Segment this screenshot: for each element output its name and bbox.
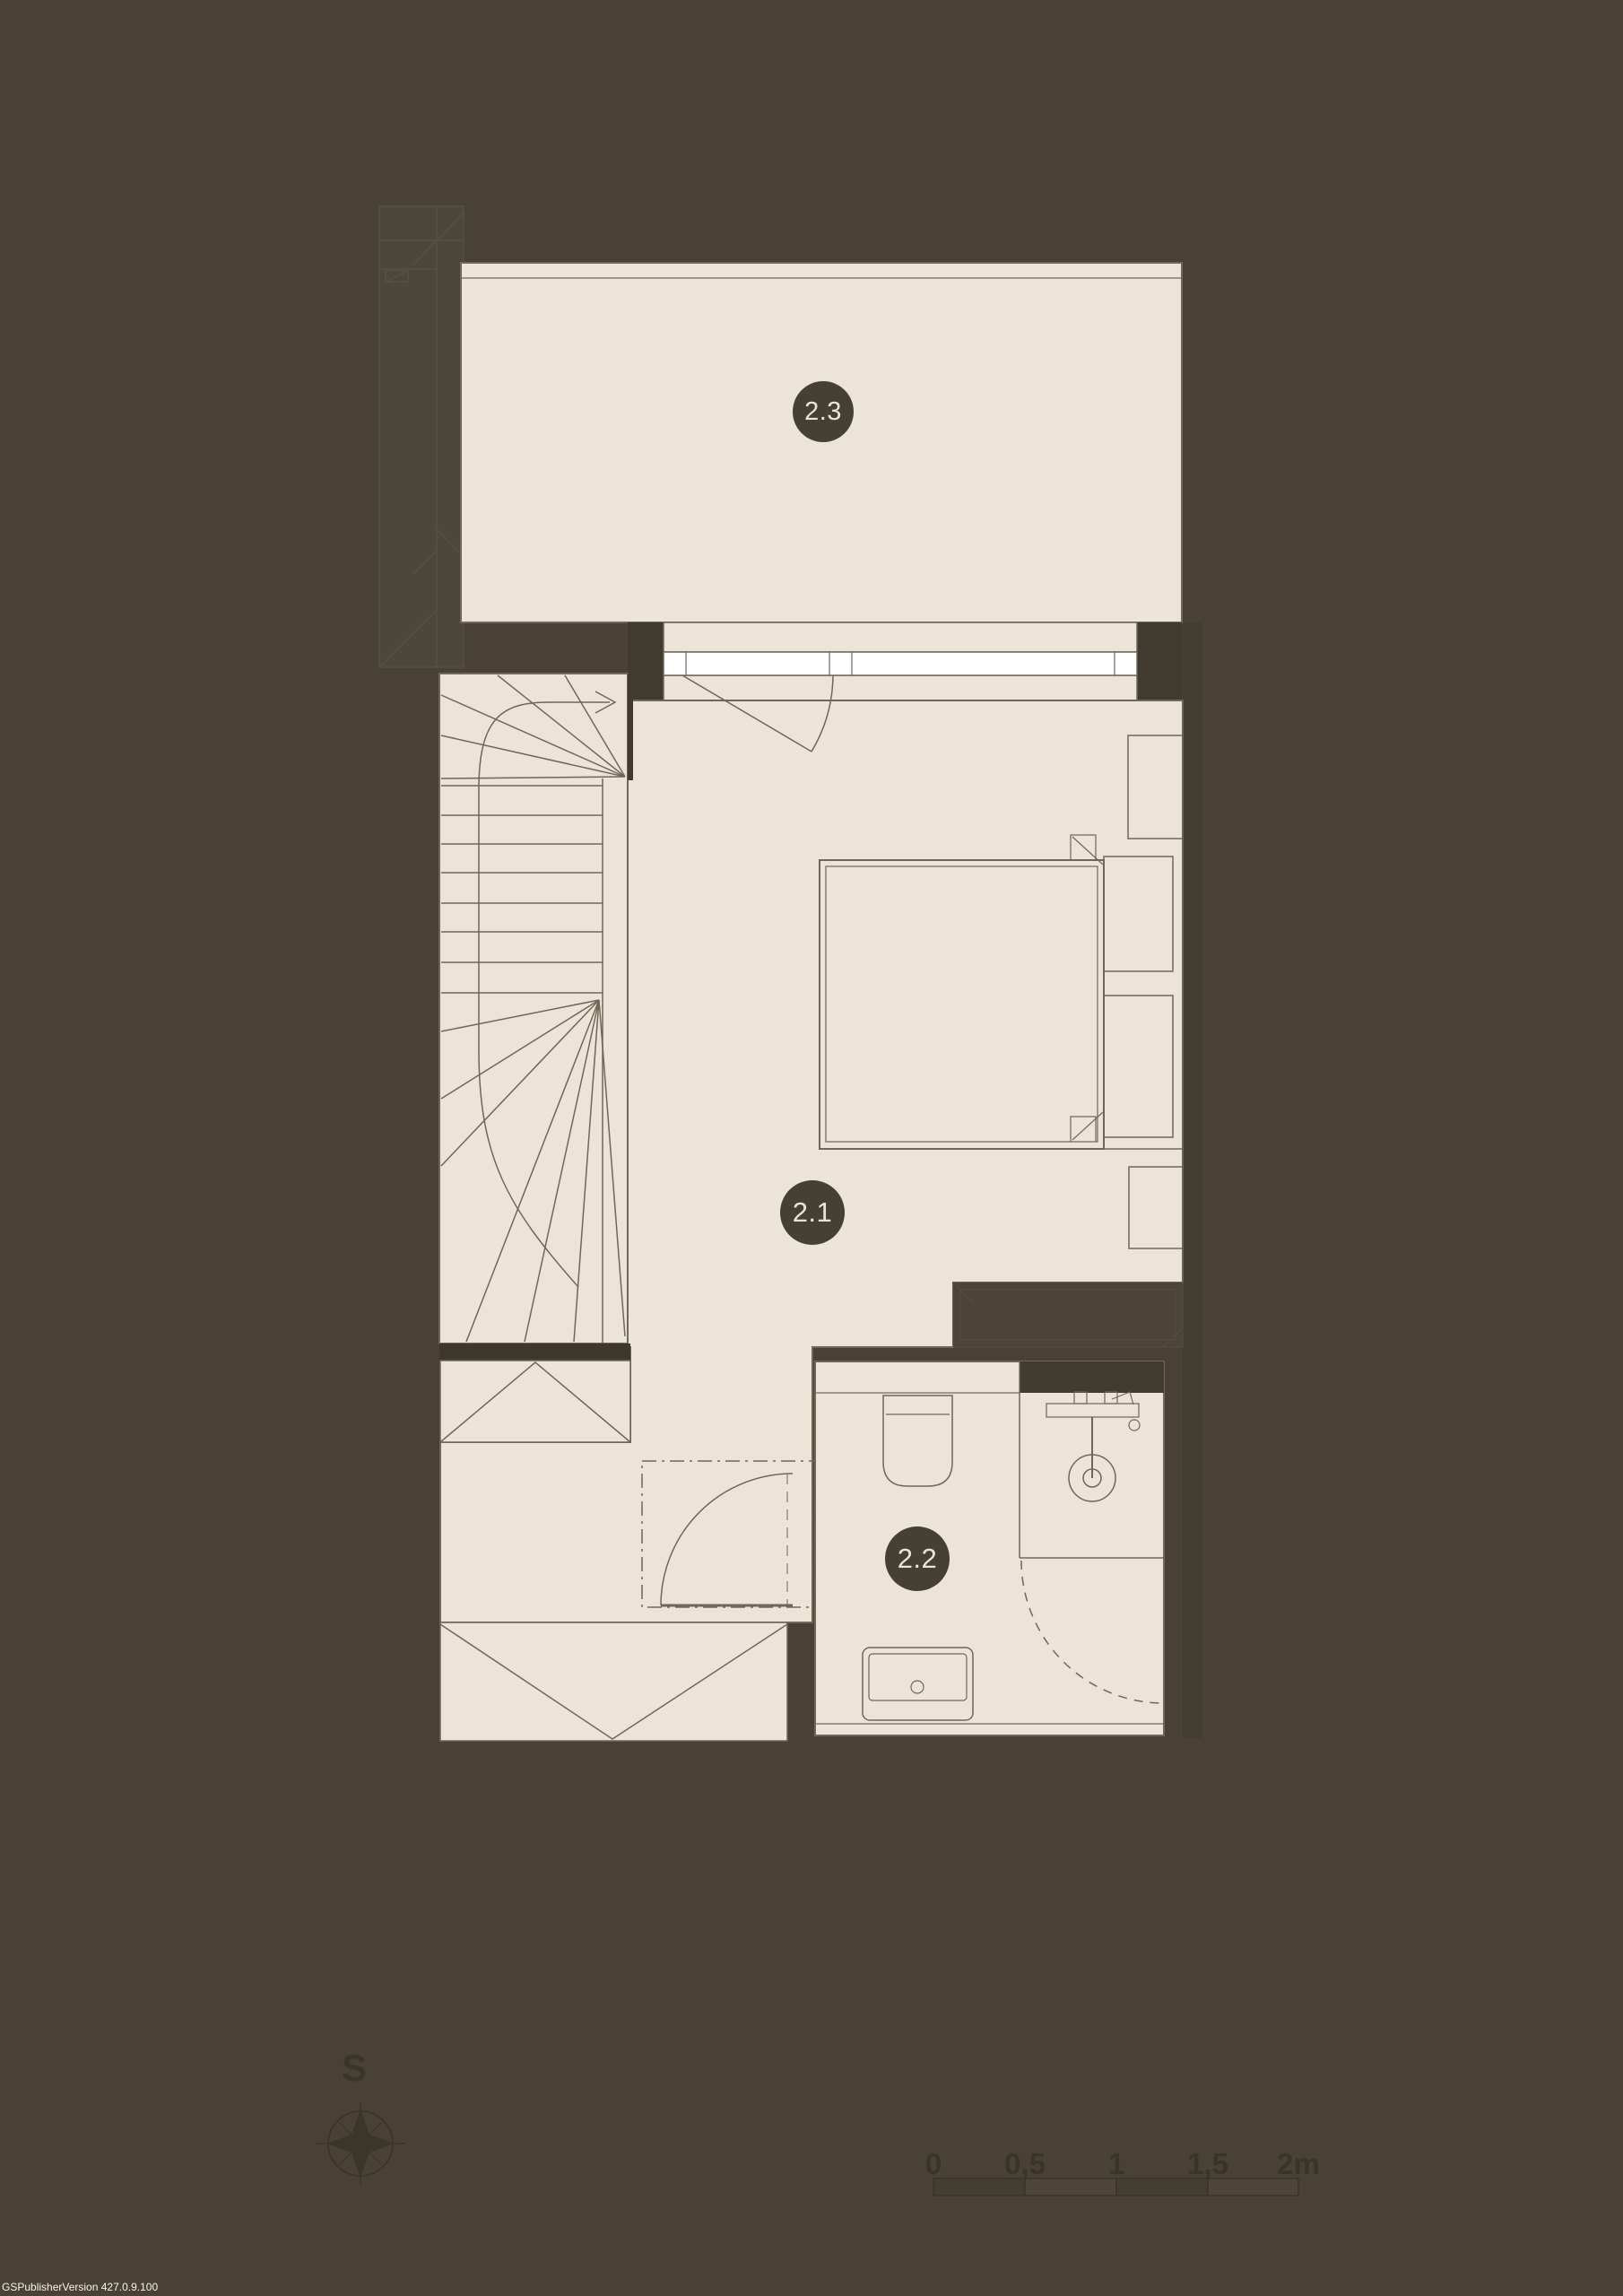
scale-tick-label: 1,5 (1167, 2147, 1248, 2181)
wardrobe-lower (440, 1622, 787, 1741)
window-glazing (664, 652, 1137, 675)
adjacent-structure-outline (379, 206, 464, 667)
floor-plan-page: 2.3 2.1 2.2 S 0 0,5 1 1,5 2m GSPublisher… (0, 0, 1623, 2296)
compass-icon (316, 2103, 405, 2184)
room-number: 2.2 (898, 1543, 938, 1575)
room-label-2-2: 2.2 (885, 1526, 950, 1591)
scale-tick-label: 0,5 (985, 2147, 1065, 2181)
scale-tick-label: 1 (1076, 2147, 1157, 2181)
room-2-3-floor (461, 263, 1182, 622)
wall-segment (1137, 622, 1182, 700)
scale-tick-label: 0 (893, 2147, 974, 2181)
staircase (439, 674, 633, 1344)
publisher-watermark: GSPublisherVersion 427.0.9.100 (2, 2281, 158, 2293)
room-label-2-1: 2.1 (780, 1180, 845, 1245)
floor-plan-drawing (0, 0, 1623, 2296)
shower-bar (1046, 1404, 1139, 1417)
compass-south-label: S (323, 2047, 386, 2090)
wall-segment (439, 1344, 630, 1361)
scale-tick-label: 2m (1258, 2147, 1339, 2181)
wall-segment (1020, 1361, 1164, 1393)
room-number: 2.1 (793, 1196, 833, 1229)
window-band (628, 622, 1182, 700)
wardrobe-upper (440, 1361, 630, 1442)
wall-segment (628, 674, 633, 780)
room-label-2-3: 2.3 (793, 381, 854, 442)
room-number: 2.3 (804, 397, 842, 427)
